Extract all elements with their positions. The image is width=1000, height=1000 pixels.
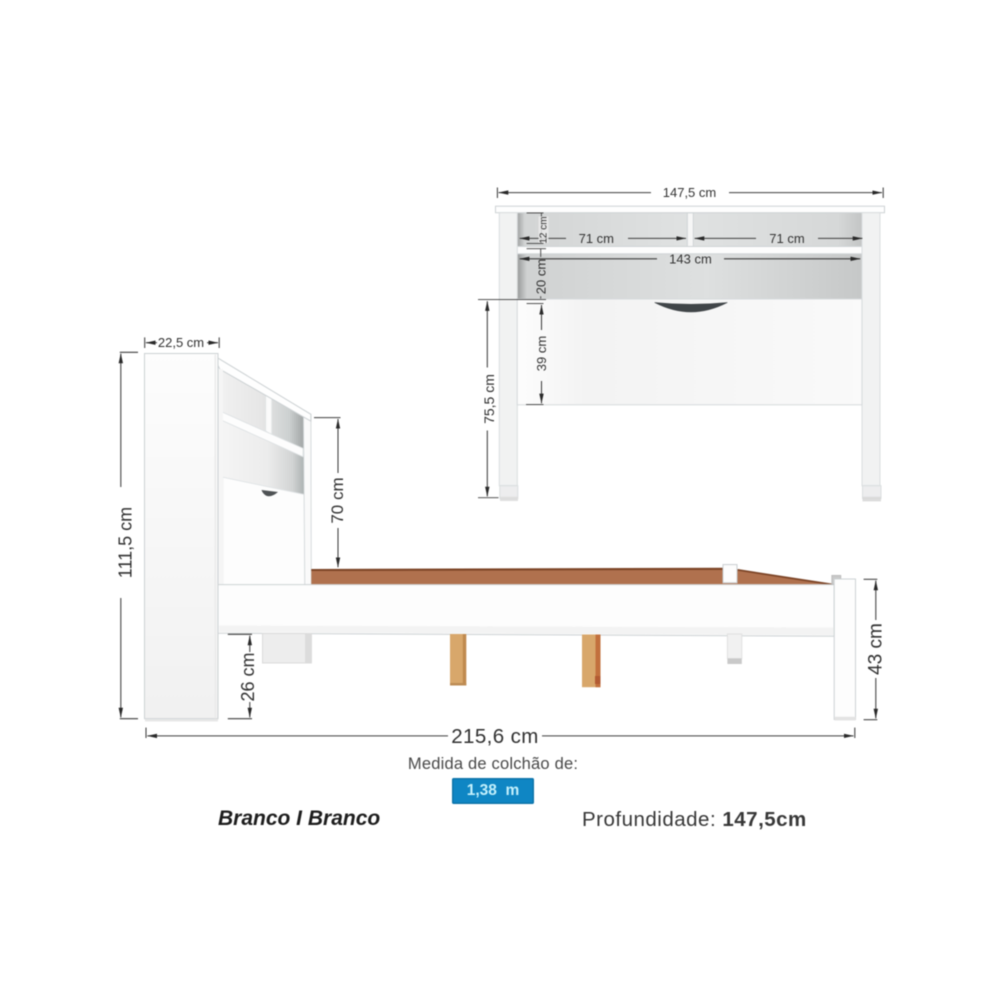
svg-text:26 cm: 26 cm bbox=[238, 652, 258, 701]
svg-text:12 cm: 12 cm bbox=[539, 216, 550, 243]
svg-text:70 cm: 70 cm bbox=[328, 477, 347, 523]
svg-text:20 cm: 20 cm bbox=[534, 259, 549, 294]
svg-text:215,6 cm: 215,6 cm bbox=[451, 725, 539, 748]
svg-text:71 cm: 71 cm bbox=[579, 231, 614, 246]
svg-text:143 cm: 143 cm bbox=[669, 252, 712, 267]
svg-text:75,5 cm: 75,5 cm bbox=[481, 374, 497, 424]
svg-text:71 cm: 71 cm bbox=[769, 231, 804, 246]
svg-text:43 cm: 43 cm bbox=[865, 623, 886, 675]
svg-text:22,5 cm: 22,5 cm bbox=[158, 335, 204, 350]
svg-text:147,5 cm: 147,5 cm bbox=[663, 185, 716, 200]
svg-text:111,5 cm: 111,5 cm bbox=[115, 507, 135, 578]
svg-text:39 cm: 39 cm bbox=[534, 336, 549, 371]
